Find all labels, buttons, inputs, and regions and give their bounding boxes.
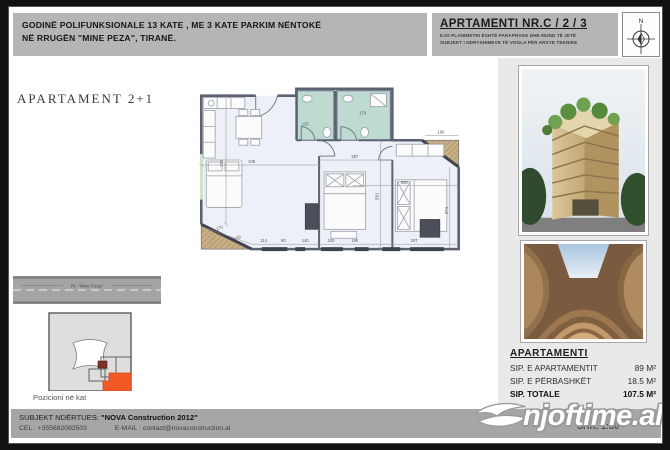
floor-plan: 725 348 357 500 530 274 160 120 170 170 … <box>184 65 472 263</box>
dimension-label: 120 <box>302 121 310 126</box>
dimension-label: 100 <box>328 238 336 243</box>
kitchen-cabinets <box>203 111 215 159</box>
road-label: Rr. "Mine Peza" <box>71 284 103 289</box>
title-block: GODINË POLIFUNKSIONALE 13 KATE , ME 3 KA… <box>13 13 427 56</box>
position-caption: Pozicioni në kat <box>33 393 86 402</box>
njoftime-watermark: njoftime.al <box>471 390 663 442</box>
builder-name: "NOVA Construction 2012" <box>101 413 198 422</box>
right-panel: APARTAMENTI SIP. E APARTAMENTIT 89 M² SI… <box>498 58 663 410</box>
dining-table <box>236 116 262 138</box>
dimension-label: 190 <box>351 238 359 243</box>
planimetry-disclaimer: KJO PLANIMETRI ËSHTË PARAPRAKE DHE MUND … <box>440 33 610 47</box>
apartment-number-block: APRTAMENTI NR.C / 2 / 3 KJO PLANIMETRI Ë… <box>432 13 618 56</box>
builder-email: E-MAIL : contact@novaconstruction.al <box>115 425 230 432</box>
project-title-line2: NË RRUGËN "MINE PEZA", TIRANË. <box>22 32 418 45</box>
watermark-text: njoftime.al <box>523 400 663 433</box>
building-exterior-render <box>522 69 645 232</box>
road: Rr. "Mine Peza" <box>13 276 161 304</box>
courtyard-render <box>524 244 643 339</box>
dimension-label: 274 <box>444 206 449 214</box>
dimension-label: 170 <box>359 111 367 116</box>
builder-phone: CEL : +355692082503 <box>19 425 87 432</box>
courtyard-photo-frame <box>520 240 647 343</box>
project-title-line1: GODINË POLIFUNKSIONALE 13 KATE , ME 3 KA… <box>22 19 418 32</box>
dimension-label: 80 <box>281 238 286 243</box>
area-row-apartment: SIP. E APARTAMENTIT 89 M² <box>510 362 656 375</box>
dimension-label: 500 <box>401 180 409 185</box>
dimension-label: 297 <box>411 238 419 243</box>
dimension-label: 357 <box>351 154 359 159</box>
compass-north-label: N <box>639 18 644 25</box>
builder-info: SUBJEKT NDËRTUES: "NOVA Construction 201… <box>19 413 198 422</box>
dimension-label: 140 <box>302 238 310 243</box>
apartment-number-title: APRTAMENTI NR.C / 2 / 3 <box>440 18 610 30</box>
closet-row <box>396 144 444 156</box>
njoftime-bird-icon <box>471 398 529 434</box>
dimension-label: 114 <box>260 238 267 243</box>
dimension-label: 725 <box>219 159 224 167</box>
compass-box: N <box>622 12 660 57</box>
area-table-title: APARTAMENTI <box>510 348 656 359</box>
building-exterior-photo-frame <box>518 65 649 236</box>
wardrobe-1 <box>305 204 318 230</box>
area-row-common: SIP. E PËRBASHKËT 18.5 M² <box>510 375 656 388</box>
building-footprint <box>49 313 131 391</box>
dimension-label: 348 <box>248 159 256 164</box>
position-diagram: Rr. "Mine Peza" <box>13 273 163 391</box>
floor-plan-label: APARTAMENT 2+1 <box>17 91 154 107</box>
builder-contacts: CEL : +355692082503 E-MAIL : contact@nov… <box>19 425 230 432</box>
stair-core <box>98 361 107 368</box>
window-left <box>200 154 203 200</box>
compass-icon: N <box>625 15 657 55</box>
document-page: GODINË POLIFUNKSIONALE 13 KATE , ME 3 KA… <box>8 6 663 444</box>
wardrobe-2 <box>420 219 440 237</box>
dimension-label: 160 <box>437 129 445 134</box>
dimension-label: 530 <box>374 193 379 201</box>
